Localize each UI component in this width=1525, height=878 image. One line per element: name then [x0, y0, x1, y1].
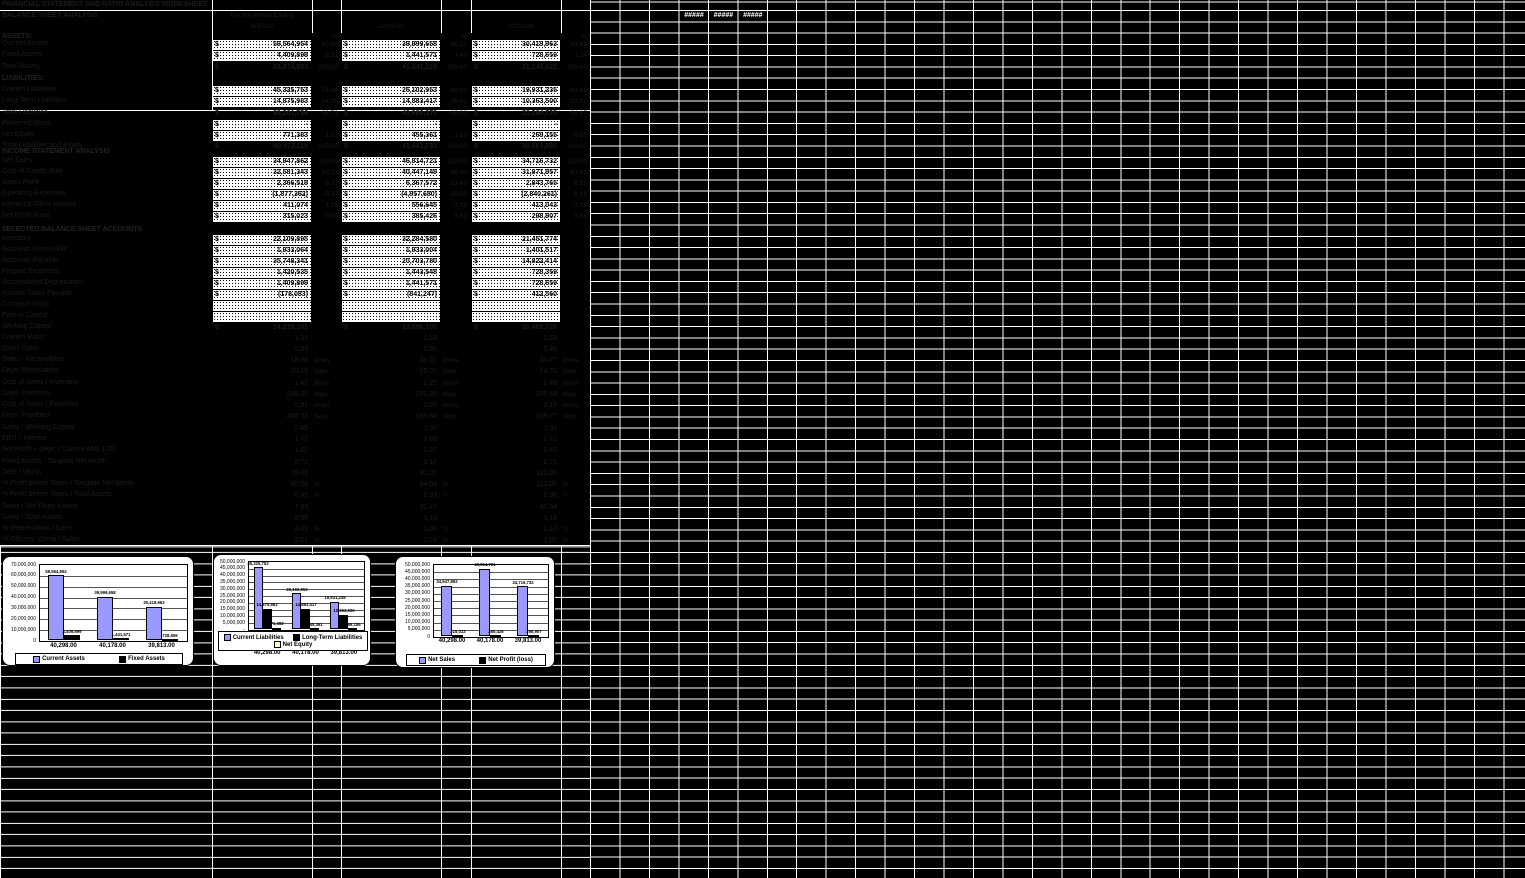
pct-value[interactable]: -8.18 — [561, 191, 587, 198]
cell-b[interactable]: $35,748,341 — [213, 257, 311, 267]
cell-b[interactable]: $315,023 — [213, 212, 311, 222]
cell-d[interactable]: $1,443,548 — [342, 268, 440, 278]
row-label[interactable]: Preferred Stock — [2, 120, 51, 127]
row-label[interactable]: Current Liabilities — [2, 86, 56, 93]
bar-fixed-assets[interactable] — [162, 639, 178, 641]
pct-value[interactable]: 100.00 — [441, 158, 467, 165]
pct-value[interactable]: 74.34 — [312, 87, 338, 94]
ratio-value[interactable]: 14.73 — [472, 368, 557, 375]
ratio-unit[interactable]: % — [314, 537, 320, 544]
cell-f[interactable] — [472, 301, 560, 311]
ratio-unit[interactable]: % — [443, 537, 449, 544]
legend-item: Long-Term Liabilities — [293, 634, 362, 641]
ratio-value[interactable]: 1.69 — [342, 436, 437, 443]
row-label[interactable]: Days' Inventory — [2, 390, 50, 397]
row-label[interactable]: INCOME STATEMENT ANALYSIS — [2, 148, 110, 155]
ratio-value[interactable]: 1.95 — [342, 402, 437, 409]
cell-f[interactable]: $2,843,765 — [472, 179, 560, 189]
cell-b[interactable]: $32,581,343 — [213, 168, 311, 178]
ratio-value[interactable]: 4.03 — [213, 526, 308, 533]
cell-f[interactable]: $728,659 — [472, 51, 560, 61]
row-label[interactable]: Accumulated Depreciation — [2, 279, 84, 286]
ratio-value[interactable]: 1.41 — [472, 447, 557, 454]
row-label[interactable]: Sales / Net Fixed Assets — [2, 503, 78, 510]
row-label[interactable]: Operating Expenses — [2, 190, 65, 197]
pct-value[interactable]: 13.60 — [441, 180, 467, 187]
row-label[interactable]: Debt / Worth — [2, 469, 41, 476]
pct-value[interactable]: 6.77 — [312, 180, 338, 187]
overflow-cell[interactable]: ##### — [680, 11, 708, 21]
cell-b[interactable]: $60,201,736 — [213, 109, 311, 119]
ratio-value[interactable]: 248.30 — [213, 391, 308, 398]
ratio-unit[interactable]: % — [314, 481, 320, 488]
cell-b[interactable]: $14,875,983 — [213, 97, 311, 107]
pct-value[interactable]: 94.17 — [561, 110, 587, 117]
pct-value[interactable]: 92.60 — [312, 41, 338, 48]
ratio-value[interactable]: 15.07 — [342, 368, 437, 375]
cell-b[interactable]: $(1,877,362) — [213, 190, 311, 200]
ratio-value[interactable]: 20.19 — [213, 368, 308, 375]
bar-net-equity[interactable] — [348, 628, 357, 630]
row-label[interactable]: Net Sales — [2, 157, 32, 164]
row-label[interactable]: LIABILITIES: — [2, 75, 44, 82]
cell-b[interactable]: $60,973,119 — [213, 142, 311, 152]
cell-d[interactable]: $46,814,721 — [342, 157, 440, 167]
y-axis-tick-label: 40,000,000 — [3, 594, 36, 600]
row-label[interactable]: Interest & Other Income — [2, 201, 76, 208]
cell-d[interactable]: $1,933,004 — [342, 246, 440, 256]
ratio-unit[interactable]: days — [563, 368, 577, 375]
cell-b[interactable]: $22,109,895 — [213, 235, 311, 245]
cell-d[interactable]: $6,367,572 — [342, 179, 440, 189]
ratio-value[interactable]: 2.71 — [472, 459, 557, 466]
cell-f[interactable]: $30,294,735 — [472, 109, 560, 119]
ratio-value[interactable]: 186.84 — [342, 413, 437, 420]
chart-gridline — [249, 569, 364, 570]
cell-f[interactable]: $1,401,517 — [472, 246, 560, 256]
ratio-unit[interactable]: % — [563, 526, 569, 533]
cell-b[interactable]: $45,325,753 — [213, 86, 311, 96]
pct-value[interactable]: 1.27 — [312, 132, 338, 139]
row-label[interactable]: Sales / Receivables — [2, 356, 63, 363]
pct-value[interactable]: 98.73 — [312, 110, 338, 117]
ratio-value[interactable]: 1.14 — [472, 515, 557, 522]
row-label[interactable]: EBIT / Interest — [2, 435, 47, 442]
cell-b[interactable]: $411,074 — [213, 201, 311, 211]
pct-value[interactable]: 1.19 — [561, 202, 587, 209]
cell-f[interactable]: $(2,840,261) — [472, 190, 560, 200]
ratio-value[interactable]: 2.45 — [213, 425, 308, 432]
y-axis-tick-label: 45,000,000 — [396, 569, 430, 575]
pct-value[interactable]: -5.37 — [312, 191, 338, 198]
bar-net-profit-loss-[interactable] — [528, 635, 539, 637]
pct-value[interactable]: 100.00 — [441, 143, 467, 150]
pct-value[interactable]: 8.19 — [561, 180, 587, 187]
chart-sales[interactable]: 50,000,00045,000,00040,000,00035,000,000… — [395, 556, 555, 668]
row-label[interactable]: Fixed Assets / Tangible Net Worth — [2, 458, 107, 465]
x-axis-category-label: 39,813.00 — [509, 638, 547, 644]
cell-d[interactable]: $39,999,658 — [342, 40, 440, 50]
cell-b[interactable]: $1,409,899 — [213, 279, 311, 289]
pct-value[interactable]: 86.40 — [441, 169, 467, 176]
worksheet-grid-right — [590, 0, 1525, 878]
ratio-unit[interactable]: times — [314, 380, 330, 387]
ratio-value[interactable]: 7.93 — [213, 504, 308, 511]
ratio-value[interactable]: 1.25 — [342, 380, 437, 387]
ratio-value[interactable]: 3.31 — [472, 425, 557, 432]
ratio-value[interactable]: 1.72 — [472, 436, 557, 443]
ratio-value[interactable]: 112.55 — [472, 470, 557, 477]
col-f-date: 12/31/08 — [472, 23, 570, 30]
cell-b[interactable] — [213, 301, 311, 311]
pct-value[interactable]: 92.61 — [561, 41, 587, 48]
ratio-unit[interactable]: times — [443, 357, 459, 364]
cell-f[interactable]: $412,560 — [472, 290, 560, 300]
cell-f[interactable]: $19,931,235 — [472, 86, 560, 96]
legend-item: Current Assets — [33, 656, 85, 663]
cell-f[interactable]: $30,563,890 — [472, 142, 560, 152]
cell-d[interactable]: $- — [342, 120, 440, 130]
bar-current-liabilities[interactable] — [254, 567, 263, 629]
ratio-unit[interactable]: % — [563, 481, 569, 488]
ratio-value[interactable]: 111.05 — [472, 481, 557, 488]
ratio-unit[interactable]: times — [314, 402, 330, 409]
cell-value: 31,871,957 — [522, 169, 557, 176]
ratio-unit[interactable]: days — [443, 368, 457, 375]
ratio-unit[interactable]: % — [443, 481, 449, 488]
row-label[interactable]: Sales / Total Assets — [2, 514, 63, 521]
row-label[interactable]: Inventory — [2, 235, 31, 242]
ratio-value[interactable]: 84.64 — [342, 481, 437, 488]
pct-value[interactable]: 35.91 — [441, 98, 467, 105]
cell-d[interactable]: $(841,247) — [342, 290, 440, 300]
pct-value[interactable]: 100.00 — [312, 143, 338, 150]
ratio-value[interactable]: 3.08 — [342, 526, 437, 533]
pct-value[interactable]: 2.31 — [312, 52, 338, 59]
chart-gridline — [434, 572, 548, 573]
ratio-unit[interactable]: times — [443, 402, 459, 409]
ratio-value[interactable]: 24.22 — [342, 357, 437, 364]
row-label[interactable]: Cost of Sales / Payables — [2, 401, 78, 408]
row-label[interactable]: Net Equity — [2, 131, 34, 138]
row-label[interactable]: Sales / Working Capital — [2, 424, 75, 431]
ratio-unit[interactable]: days — [563, 413, 577, 420]
cell-d[interactable]: $40,447,149 — [342, 168, 440, 178]
ratio-value[interactable]: 2.21 — [213, 537, 308, 544]
ratio-value[interactable]: 18.08 — [213, 357, 308, 364]
dollar-sign: $ — [474, 52, 478, 59]
pct-value[interactable]: 91.81 — [561, 169, 587, 176]
ratio-value[interactable]: 0.49 — [213, 492, 308, 499]
cell-b[interactable]: $771,383 — [213, 131, 311, 141]
cell-f[interactable]: $30,419,963 — [472, 40, 560, 50]
ratio-value[interactable]: 0.55 — [213, 515, 308, 522]
cell-d[interactable] — [342, 312, 440, 322]
row-label[interactable]: % Profit before Taxes / Total Assets — [2, 491, 111, 498]
ratio-value[interactable]: 0.45 — [472, 346, 557, 353]
cell-f[interactable]: $10,488,728 — [472, 323, 560, 333]
row-label[interactable]: Current Assets — [2, 40, 48, 47]
ratio-unit[interactable]: % — [563, 492, 569, 499]
pct-value[interactable]: 0.82 — [441, 213, 467, 220]
cell-d[interactable]: $(4,957,680) — [342, 190, 440, 200]
ratio-value[interactable]: 5.72 — [213, 459, 308, 466]
ratio-unit[interactable]: days — [563, 391, 577, 398]
bar-net-profit-loss-[interactable] — [490, 635, 501, 637]
pct-value[interactable]: 3.49 — [441, 52, 467, 59]
ratio-unit[interactable]: days — [443, 391, 457, 398]
chart-legend[interactable]: Net SalesNet Profit (loss) — [406, 654, 546, 666]
row-label[interactable]: Days' Receivables — [2, 367, 59, 374]
ratio-unit[interactable]: times — [563, 380, 579, 387]
cell-b[interactable]: $(178,083) — [213, 290, 311, 300]
ratio-unit[interactable]: % — [314, 492, 320, 499]
cell-b[interactable]: $1,420,535 — [213, 268, 311, 278]
dollar-sign: $ — [344, 143, 348, 150]
cell-d[interactable]: $556,645 — [342, 201, 440, 211]
pct-value[interactable]: 100.00 — [312, 158, 338, 165]
cell-b[interactable] — [213, 312, 311, 322]
cell-f[interactable]: $31,148,622 — [472, 63, 560, 73]
ratio-value[interactable]: 1.27 — [342, 447, 437, 454]
cell-b[interactable]: $- — [213, 120, 311, 130]
ratio-value[interactable]: 1.74 — [342, 537, 437, 544]
cell-f[interactable]: $14,822,414 — [472, 257, 560, 267]
row-label[interactable]: Net Profit + Depr. / Current Mat. LTD — [2, 446, 115, 453]
pct-value[interactable]: 62.09 — [441, 87, 467, 94]
ratio-value[interactable]: 0.98 — [472, 492, 557, 499]
pct-value[interactable]: 1.19 — [441, 202, 467, 209]
bar-net-sales[interactable] — [441, 586, 452, 636]
cell-value: 31,148,622 — [522, 64, 557, 71]
ratio-unit[interactable]: % — [443, 492, 449, 499]
y-axis-tick-label: 10,000,000 — [396, 619, 430, 625]
row-label[interactable]: Gross Profit — [2, 179, 39, 186]
bar-fixed-assets[interactable] — [113, 638, 129, 640]
pct-value[interactable]: 33.12 — [561, 98, 587, 105]
row-label[interactable]: Common Stock — [2, 301, 50, 308]
pct-value[interactable]: -10.59 — [441, 191, 467, 198]
ratio-unit[interactable]: days — [314, 368, 328, 375]
gridline — [0, 545, 1, 878]
row-label[interactable]: Paid-in Capital — [2, 312, 48, 319]
cell-f[interactable]: $34,716,732 — [472, 157, 560, 167]
cell-d[interactable]: $14,883,417 — [342, 97, 440, 107]
cell-b[interactable]: $59,564,954 — [213, 40, 311, 50]
cell-d[interactable]: $32,284,580 — [342, 235, 440, 245]
ratio-value[interactable]: 0.91 — [213, 402, 308, 409]
overflow-cell[interactable]: ##### — [709, 11, 737, 21]
pct-value[interactable]: 1.18 — [312, 202, 338, 209]
row-label[interactable]: Working Capital — [2, 323, 51, 330]
ratio-value[interactable]: 40.84 — [213, 481, 308, 488]
cell-value: 26,102,953 — [402, 87, 437, 94]
ratio-value[interactable]: 1.53 — [342, 335, 437, 342]
row-label[interactable]: Accounts Receivable — [2, 246, 67, 253]
pct-value[interactable]: 98.00 — [441, 110, 467, 117]
bar-net-equity[interactable] — [272, 628, 281, 630]
cell-b[interactable]: $2,366,519 — [213, 179, 311, 189]
ratio-value[interactable]: 3.37 — [342, 425, 437, 432]
row-label[interactable]: Accounts Payable — [2, 257, 58, 264]
pct-value[interactable]: 0.86 — [561, 213, 587, 220]
row-label[interactable]: Long-Term Liabilities — [2, 97, 66, 104]
row-label[interactable]: Prepaid Expenses — [2, 268, 59, 275]
ratio-value[interactable]: 169.77 — [472, 413, 557, 420]
cell-d[interactable]: $455,361 — [342, 131, 440, 141]
ratio-unit[interactable]: days — [443, 413, 457, 420]
row-label[interactable]: Days' Payables — [2, 412, 50, 419]
cell-d[interactable]: $40,986,370 — [342, 109, 440, 119]
cell-f[interactable]: $298,907 — [472, 212, 560, 222]
cell-d[interactable]: $20,703,780 — [342, 257, 440, 267]
ratio-value[interactable]: 1.85 — [472, 537, 557, 544]
y-axis-tick-label: 70,000,000 — [3, 562, 36, 568]
row-label[interactable]: Cost of Sales / Inventory — [2, 379, 78, 386]
chart-liabilities[interactable]: 50,000,00045,000,00040,000,00035,000,000… — [213, 554, 371, 666]
cell-value: 315,023 — [283, 213, 308, 220]
pct-value[interactable]: 100.00 — [561, 64, 587, 71]
cell-d[interactable] — [342, 301, 440, 311]
bar-net-profit-loss-[interactable] — [452, 635, 463, 637]
row-label[interactable]: SELECTED BALANCE SHEET ACCOUNTS — [2, 226, 142, 233]
cell-d[interactable]: $26,102,953 — [342, 86, 440, 96]
pct-value[interactable]: 100.00 — [561, 158, 587, 165]
ratio-value[interactable]: 24.77 — [472, 357, 557, 364]
ratio-value[interactable]: 0.30 — [342, 346, 437, 353]
legend-item: Current Liabilities — [224, 634, 284, 641]
row-label[interactable]: Quick Ratio — [2, 345, 38, 352]
chart-legend[interactable]: Current AssetsFixed Assets — [15, 653, 183, 665]
cell-d[interactable]: $41,441,731 — [342, 142, 440, 152]
ratio-value[interactable]: 1.31 — [213, 335, 308, 342]
legend-label: Net Profit (loss) — [488, 657, 533, 663]
cell-f[interactable]: $413,043 — [472, 201, 560, 211]
cell-f[interactable]: $21,451,774 — [472, 235, 560, 245]
pct-value[interactable]: 24.39 — [312, 98, 338, 105]
ratio-value[interactable]: 1.77 — [213, 436, 308, 443]
ratio-value[interactable]: 32.47 — [342, 504, 437, 511]
ratio-unit[interactable]: times — [563, 402, 579, 409]
cell-b[interactable]: $4,409,899 — [213, 51, 311, 61]
ratio-value[interactable]: 400.53 — [213, 413, 308, 420]
dollar-sign: $ — [474, 324, 478, 331]
pct-value[interactable]: 2.24 — [561, 52, 587, 59]
pct-value[interactable]: 61.05 — [561, 87, 587, 94]
cell-d[interactable]: $13,896,105 — [342, 323, 440, 333]
row-label[interactable]: Fixed Assets — [2, 51, 42, 58]
row-label[interactable]: Current Ratio — [2, 334, 44, 341]
cell-value: - — [435, 121, 437, 128]
ratio-value[interactable]: 1.49 — [472, 380, 557, 387]
cell-d[interactable]: $41,441,229 — [342, 63, 440, 73]
bar-net-sales[interactable] — [479, 569, 490, 636]
pct-value[interactable]: 100.00 — [441, 64, 467, 71]
pct-value[interactable]: 100.00 — [312, 64, 338, 71]
cell-d[interactable]: $385,426 — [342, 212, 440, 222]
cell-f[interactable]: $728,659 — [472, 279, 560, 289]
ratio-value[interactable]: 1.53 — [472, 335, 557, 342]
pct-value[interactable]: 93.23 — [312, 169, 338, 176]
cell-value: 30,563,890 — [522, 143, 557, 150]
pct-value[interactable]: 1.10 — [441, 132, 467, 139]
pct-value[interactable]: 100.00 — [561, 143, 587, 150]
cell-d[interactable]: $1,441,571 — [342, 279, 440, 289]
pct-value[interactable]: 0.90 — [312, 213, 338, 220]
row-label[interactable]: ASSETS: — [2, 33, 32, 40]
ratio-value[interactable]: 90.01 — [342, 470, 437, 477]
chart-legend[interactable]: Current LiabilitiesLong-Term Liabilities… — [218, 631, 368, 651]
ratio-unit[interactable]: % — [443, 526, 449, 533]
cell-f[interactable] — [472, 312, 560, 322]
ratio-value[interactable]: 291.35 — [342, 391, 437, 398]
dollar-sign: $ — [215, 180, 219, 187]
ratio-unit[interactable]: times — [443, 380, 459, 387]
row-label[interactable]: Cost of Goods Sold — [2, 168, 63, 175]
ratio-value[interactable]: 1.47 — [213, 380, 308, 387]
pct-value[interactable]: 96.22 — [441, 41, 467, 48]
bar-fixed-assets[interactable] — [64, 635, 80, 640]
ratio-unit[interactable]: days — [314, 413, 328, 420]
cell-f[interactable]: $10,363,500 — [472, 97, 560, 107]
ratio-unit[interactable]: times — [563, 357, 579, 364]
cell-f[interactable]: $728,359 — [472, 268, 560, 278]
cell-f[interactable]: $269,155 — [472, 131, 560, 141]
y-axis-tick-label: 20,000,000 — [3, 616, 36, 622]
ratio-value[interactable]: 2.10 — [472, 526, 557, 533]
ratio-value[interactable]: 1.22 — [213, 447, 308, 454]
bar-data-label: 14,875,983 — [246, 603, 289, 608]
cell-f[interactable]: $- — [472, 120, 560, 130]
ratio-unit[interactable]: times — [314, 357, 330, 364]
cell-f[interactable]: $31,871,957 — [472, 168, 560, 178]
chart-assets[interactable]: 70,000,00060,000,00050,000,00040,000,000… — [2, 556, 194, 666]
bar-data-label: 34,947,862 — [425, 580, 468, 585]
cell-b[interactable]: $63,974,853 — [213, 63, 311, 73]
row-label[interactable]: % Profit before Taxes / Tangible Net Wor… — [2, 480, 134, 487]
ratio-unit[interactable]: days — [314, 391, 328, 398]
ratio-value[interactable]: 2.15 — [472, 402, 557, 409]
ratio-value[interactable]: 3.17 — [342, 459, 437, 466]
ratio-value[interactable]: 245.64 — [472, 391, 557, 398]
bar-data-label: 59,564,954 — [34, 569, 77, 574]
cell-value: 1,443,548 — [406, 269, 437, 276]
cell-b[interactable]: $14,239,201 — [213, 323, 311, 333]
row-label[interactable]: Total Assets — [2, 63, 39, 70]
y-axis-tick-label: 35,000,000 — [214, 579, 245, 585]
row-label[interactable]: % Depreciation / Sales — [2, 525, 73, 532]
cell-b[interactable]: $1,933,064 — [213, 246, 311, 256]
row-label[interactable]: % Officers' Comp / Sales — [2, 536, 79, 543]
pct-value[interactable]: 0.88 — [561, 132, 587, 139]
ratio-unit[interactable]: % — [314, 526, 320, 533]
ratio-value[interactable]: 1.13 — [342, 515, 437, 522]
bar-net-equity[interactable] — [310, 628, 319, 630]
cell-d[interactable]: $1,441,571 — [342, 51, 440, 61]
ratio-value[interactable]: 0.93 — [342, 492, 437, 499]
ratio-unit[interactable]: % — [563, 537, 569, 544]
row-label[interactable]: Net Profit (loss) — [2, 212, 50, 219]
cell-value: 41,441,229 — [402, 64, 437, 71]
overflow-cell[interactable]: ##### — [739, 11, 767, 21]
cell-b[interactable]: $34,947,862 — [213, 157, 311, 167]
ratio-value[interactable]: 0.83 — [213, 346, 308, 353]
row-label[interactable]: Total Liabilities — [2, 109, 48, 116]
pct-col-header: % — [561, 34, 587, 41]
ratio-value[interactable]: 78.04 — [213, 470, 308, 477]
ratio-value[interactable]: 47.64 — [472, 504, 557, 511]
row-label[interactable]: Income Taxes Payable — [2, 290, 72, 297]
